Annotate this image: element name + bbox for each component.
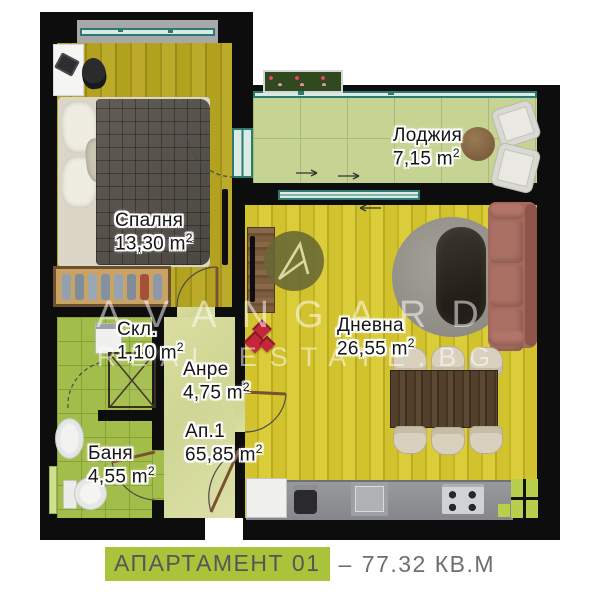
label-living: Дневна 26,55 m2 <box>337 315 415 360</box>
label-loggia: Лоджия 7,15 m2 <box>393 125 462 170</box>
floor-plan-canvas: AVANGARD REAL ESTATE.BG Спалня 13,30 m2 … <box>0 0 600 596</box>
label-unit: Ап.1 65,85 m2 <box>185 421 263 466</box>
label-hall: Анре 4,75 m2 <box>183 359 250 404</box>
plan-caption: АПАРТАМЕНТ 01 – 77.32 КВ.М <box>0 547 600 581</box>
doors-annotation-layer <box>0 0 600 596</box>
caption-dash: – <box>339 551 353 578</box>
caption-apartment-highlight: АПАРТАМЕНТ 01 <box>105 547 330 581</box>
brand-logo-icon <box>262 229 326 293</box>
label-bath: Баня 4,55 m2 <box>88 443 155 488</box>
window-handles <box>118 28 394 95</box>
caption-total-area: 77.32 КВ.М <box>362 551 495 578</box>
label-bedroom: Спалня 13,30 m2 <box>115 210 193 255</box>
label-storage: Скл. 1,10 m2 <box>117 319 184 364</box>
slide-direction-arrows <box>296 170 381 211</box>
